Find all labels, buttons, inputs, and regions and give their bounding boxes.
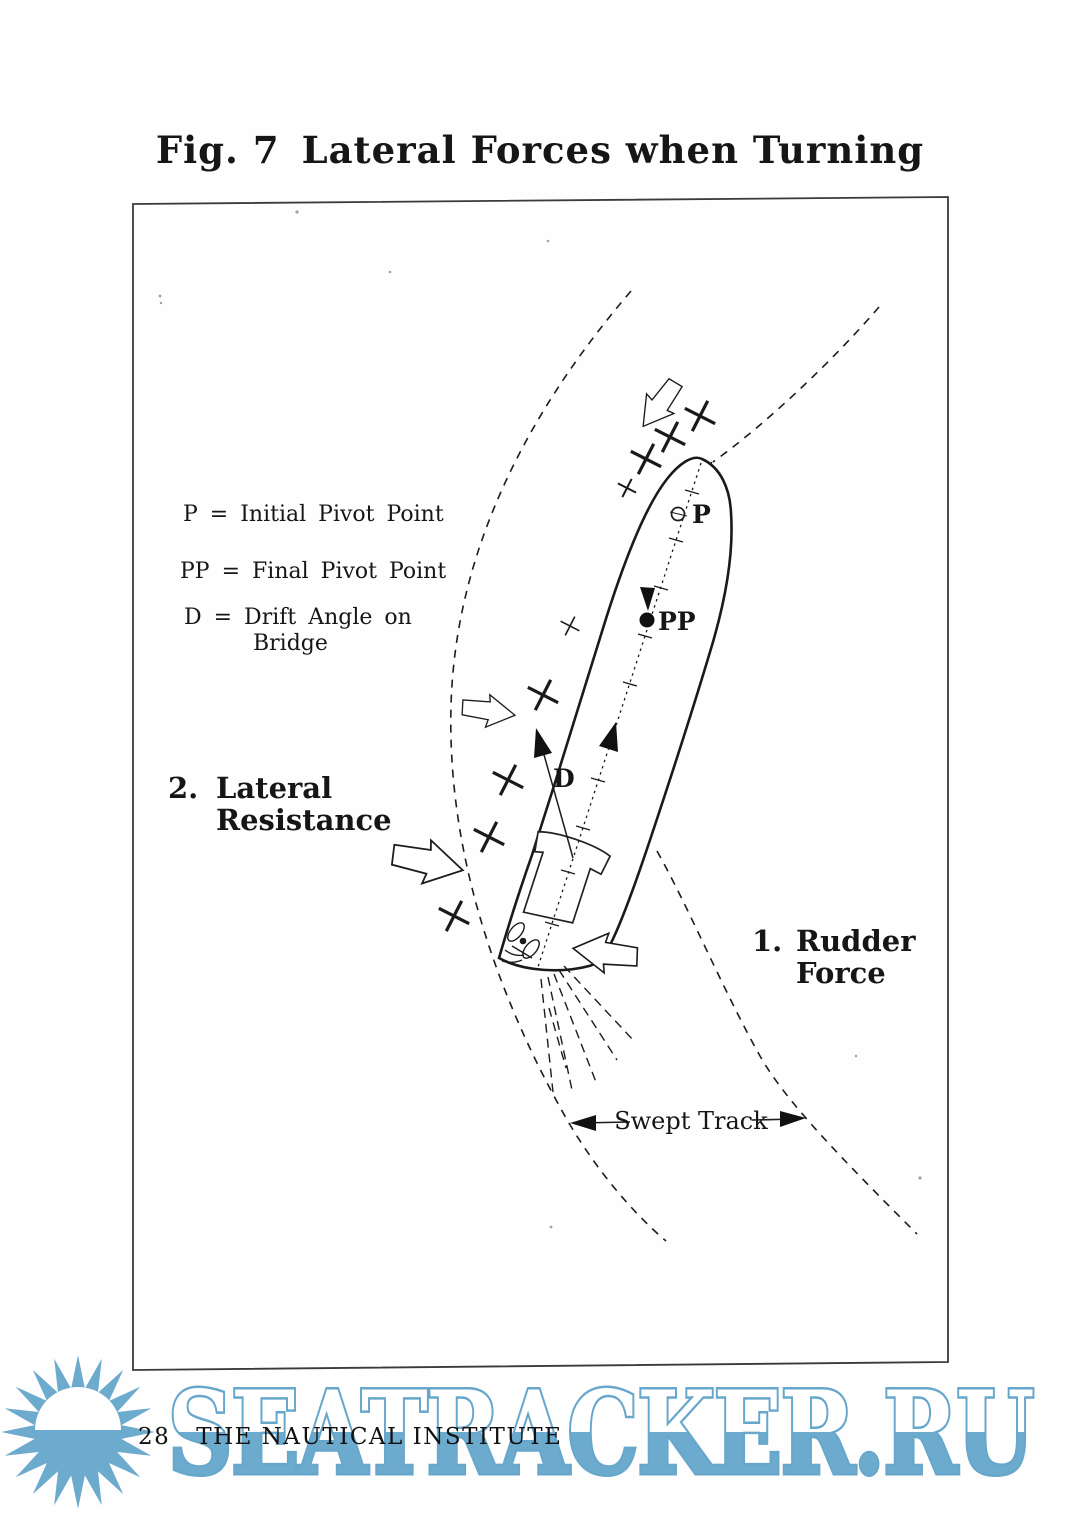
legend-drift-angle-cont: Bridge <box>253 631 328 656</box>
label-lateral-line2: Resistance <box>216 803 392 837</box>
page-footer: 28THE NAUTICAL INSTITUTE <box>138 1424 562 1450</box>
label-lateral-line1: Lateral <box>216 771 332 805</box>
force-arrow-port-lower <box>387 832 468 891</box>
legend-initial-pivot: P = Initial Pivot Point <box>183 502 444 527</box>
propeller-wash-lines <box>541 966 634 1092</box>
legend-drift-angle: D = Drift Angle on <box>184 605 412 630</box>
legend-final-pivot: PP = Final Pivot Point <box>180 559 446 584</box>
label-swept-track: Swept Track <box>614 1107 768 1135</box>
force-arrow-port-upper <box>459 691 517 732</box>
label-final-pivot: PP <box>658 607 696 636</box>
final-pivot-point-marker <box>640 613 655 628</box>
label-drift-angle: D <box>553 764 575 793</box>
label-rudder-line1: Rudder <box>796 924 916 958</box>
scan-noise <box>159 210 922 1228</box>
label-rudder-number: 1. <box>752 924 782 958</box>
publisher-name: THE NAUTICAL INSTITUTE <box>196 1424 562 1450</box>
scanned-book-page: Fig. 7Lateral Forces when Turning <box>0 0 1080 1513</box>
label-rudder-line2: Force <box>796 956 886 990</box>
force-arrow-bow <box>630 372 690 436</box>
lateral-forces-diagram: P = Initial Pivot Point PP = Final Pivot… <box>0 0 1080 1513</box>
page-number: 28 <box>138 1424 170 1450</box>
swept-track-inner-curve-upper <box>713 307 879 462</box>
label-initial-pivot: P <box>692 500 711 529</box>
label-lateral-number: 2. <box>168 771 198 805</box>
drift-arrowhead <box>534 728 552 758</box>
seatracker-sun-icon <box>0 1354 156 1510</box>
swept-track-inner-curve-lower <box>657 851 917 1234</box>
